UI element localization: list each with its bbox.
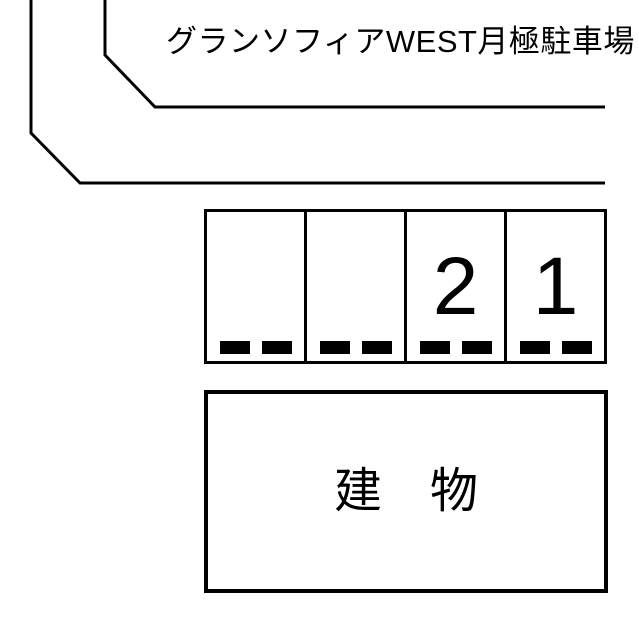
parking-row: 2 1 bbox=[204, 209, 607, 364]
stall-marking bbox=[507, 341, 604, 354]
stall-marking-dash bbox=[320, 341, 350, 354]
stall-marking-dash bbox=[520, 341, 550, 354]
stall-marking bbox=[307, 341, 404, 354]
building-label: 建 物 bbox=[334, 468, 478, 516]
parking-stall bbox=[307, 212, 407, 361]
parking-stall: 2 bbox=[407, 212, 507, 361]
stall-marking bbox=[207, 341, 304, 354]
diagram-title: グランソフィアWEST月極駐車場 bbox=[166, 22, 635, 62]
stall-number: 2 bbox=[433, 246, 479, 328]
parking-lot-diagram: グランソフィアWEST月極駐車場 2 1 bbox=[0, 0, 639, 627]
stall-marking-dash bbox=[262, 341, 292, 354]
stall-marking bbox=[407, 341, 504, 354]
parking-stall: 1 bbox=[507, 212, 604, 361]
stall-marking-dash bbox=[220, 341, 250, 354]
building-box: 建 物 bbox=[204, 390, 608, 593]
stall-number: 1 bbox=[533, 246, 579, 328]
parking-stall bbox=[207, 212, 307, 361]
stall-marking-dash bbox=[362, 341, 392, 354]
stall-marking-dash bbox=[420, 341, 450, 354]
stall-marking-dash bbox=[462, 341, 492, 354]
stall-marking-dash bbox=[562, 341, 592, 354]
